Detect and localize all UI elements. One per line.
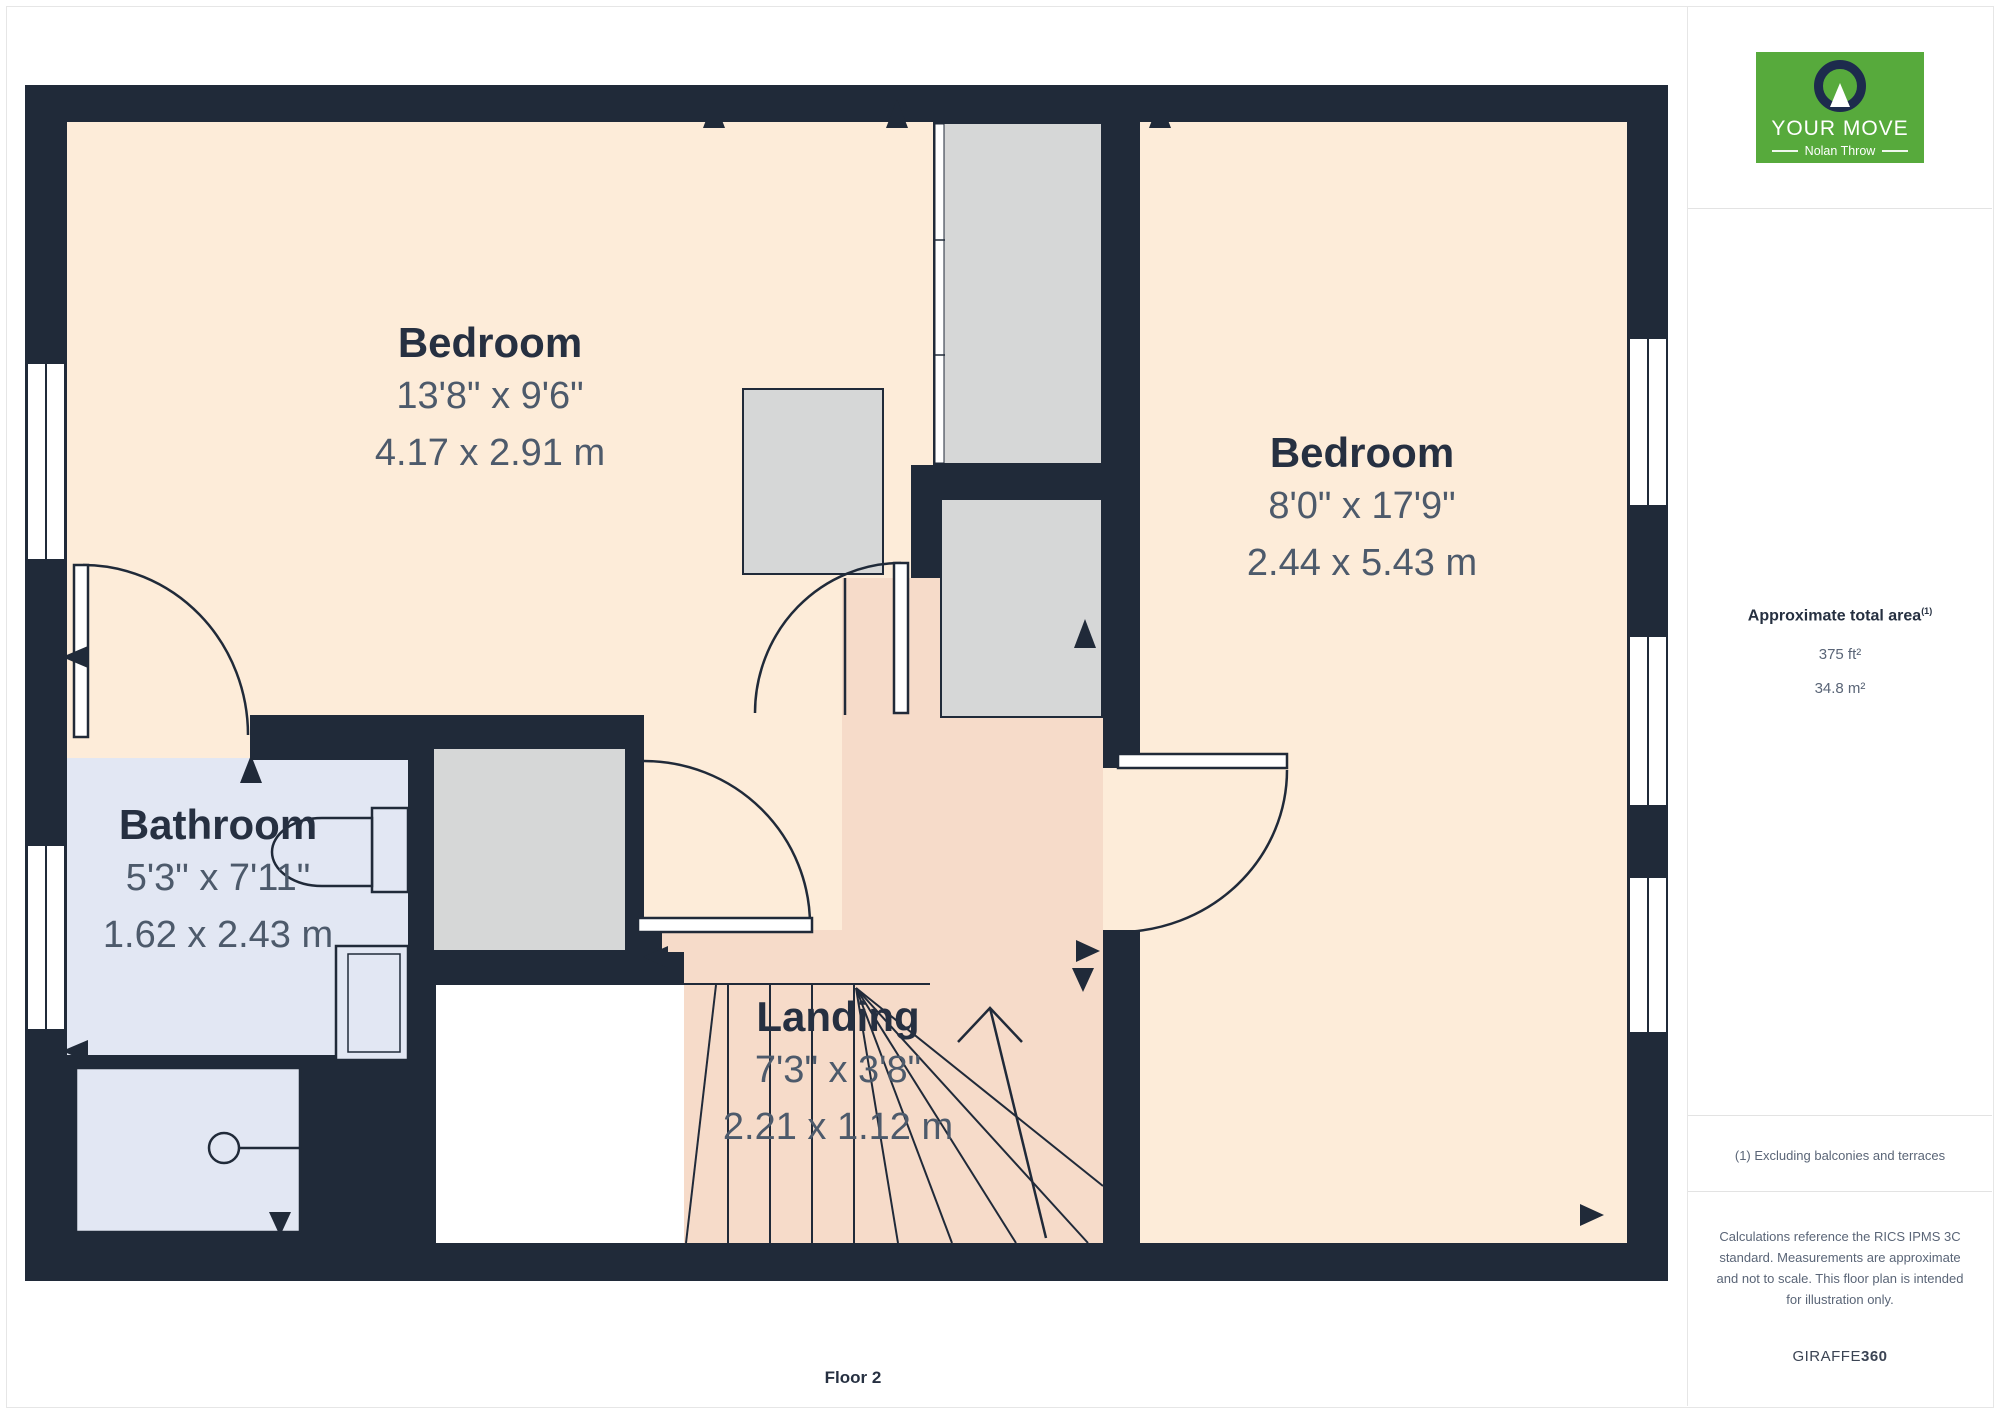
vestibule-floor <box>644 715 842 930</box>
giraffe-brand-name: GIRAFFE <box>1792 1348 1861 1365</box>
brand-subname-row: Nolan Throw <box>1772 144 1909 158</box>
room-dims-metric: 2.44 x 5.43 m <box>1122 535 1602 592</box>
room-dims-metric: 1.62 x 2.43 m <box>18 907 418 964</box>
wall-bathroom-bottom <box>67 1055 408 1243</box>
room-name: Bedroom <box>1122 428 1602 478</box>
disclaimer-text: Calculations reference the RICS IPMS 3C … <box>1716 1226 1964 1310</box>
landing-floor-mid <box>662 930 1103 985</box>
wall-bottom <box>25 1243 1668 1281</box>
wall-bedroom2-door-stub <box>1103 930 1140 985</box>
sidebar-divider-3 <box>1688 1191 1992 1192</box>
room-dims-imperial: 13'8" x 9'6" <box>230 368 750 425</box>
room-label-landing: Landing 7'3" x 3'8" 2.21 x 1.12 m <box>638 992 1038 1156</box>
wall-closet-right-left <box>911 498 940 578</box>
closet-right <box>940 498 1103 718</box>
giraffe-brand-number: 360 <box>1861 1348 1888 1365</box>
room-label-bathroom: Bathroom 5'3" x 7'11" 1.62 x 2.43 m <box>18 800 418 964</box>
brand-logo: YOUR MOVE Nolan Throw <box>1756 52 1924 163</box>
sidebar-divider-2 <box>1688 1115 1992 1116</box>
brand-logo-icon <box>1814 60 1866 112</box>
room-name: Landing <box>638 992 1038 1042</box>
wall-left <box>25 85 67 1281</box>
wall-bedroom1-bottom <box>250 715 432 760</box>
room-dims-imperial: 8'0" x 17'9" <box>1122 478 1602 535</box>
wall-stairs-right <box>1103 985 1140 1243</box>
wall-vestibule-stub <box>644 937 662 985</box>
brand-name: YOUR MOVE <box>1771 117 1908 141</box>
total-area-footnote-marker: (1) <box>1921 606 1932 616</box>
area-footnote: (1) Excluding balconies and terraces <box>1692 1148 1988 1163</box>
brand-subname: Nolan Throw <box>1805 144 1876 158</box>
room-dims-metric: 4.17 x 2.91 m <box>230 425 750 482</box>
total-area-title-text: Approximate total area <box>1748 607 1921 624</box>
total-area-m: 34.8 m² <box>1692 680 1988 697</box>
room-bedroom-2-floor <box>1140 122 1627 1243</box>
total-area-title: Approximate total area(1) <box>1692 606 1988 625</box>
bedroom-2-doorway-floor <box>1103 768 1140 930</box>
wall-top <box>25 85 1668 122</box>
room-dims-imperial: 5'3" x 7'11" <box>18 850 418 907</box>
room-label-bedroom-1: Bedroom 13'8" x 9'6" 4.17 x 2.91 m <box>230 318 750 482</box>
closet-left <box>432 747 627 952</box>
wall-closet-left-top <box>432 715 627 747</box>
brand-logo-triangle-icon <box>1830 83 1850 107</box>
brand-dash-right <box>1882 150 1908 152</box>
chimney-shaft <box>933 122 1103 465</box>
sidebar-left-border <box>1687 6 1688 1406</box>
room-name: Bedroom <box>230 318 750 368</box>
total-area-ft: 375 ft² <box>1692 646 1988 663</box>
sidebar-divider-1 <box>1688 208 1992 209</box>
wall-closet-left-right <box>627 715 644 985</box>
giraffe360-brand: GIRAFFE360 <box>1692 1348 1988 1365</box>
room-dims-metric: 2.21 x 1.12 m <box>638 1099 1038 1156</box>
wardrobe-box <box>742 388 884 575</box>
floor-label: Floor 2 <box>753 1368 953 1388</box>
bathroom-doorway-floor <box>67 718 250 760</box>
room-dims-imperial: 7'3" x 3'8" <box>638 1042 1038 1099</box>
wall-right <box>1627 85 1668 1281</box>
room-name: Bathroom <box>18 800 418 850</box>
brand-dash-left <box>1772 150 1798 152</box>
room-label-bedroom-2: Bedroom 8'0" x 17'9" 2.44 x 5.43 m <box>1122 428 1602 592</box>
